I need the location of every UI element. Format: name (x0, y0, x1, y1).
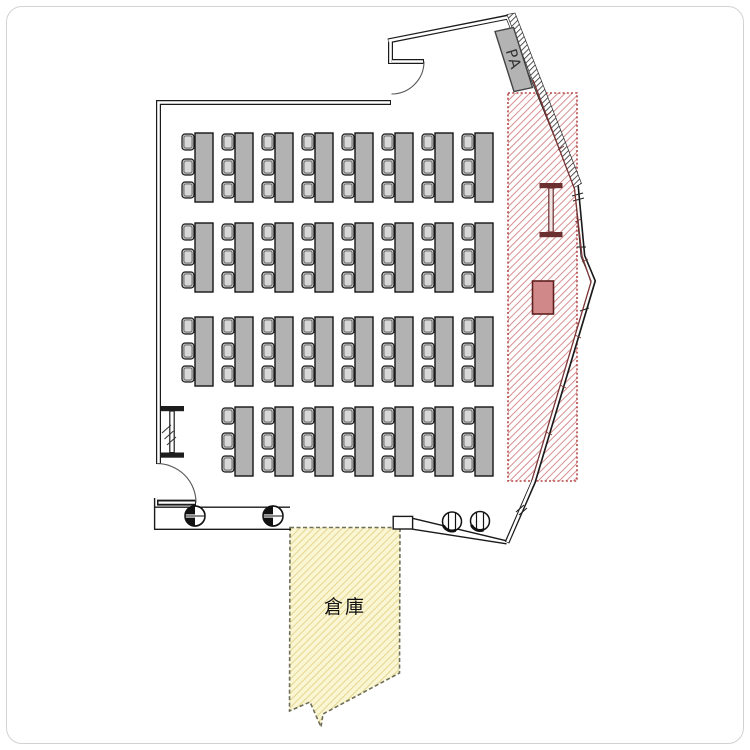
desk-top (195, 317, 213, 386)
desk-unit (342, 223, 373, 292)
chair-seat (424, 435, 432, 447)
desk-top (235, 223, 253, 292)
chair-seat (224, 136, 232, 148)
desk-unit (182, 133, 213, 202)
desk-unit (382, 223, 413, 292)
desk-top (395, 223, 413, 292)
chair-seat (344, 435, 352, 447)
desk-unit (342, 317, 373, 386)
desk-unit (222, 223, 253, 292)
desk-top (475, 407, 493, 476)
chair-seat (264, 136, 272, 148)
chair-seat (464, 184, 472, 196)
desk-unit (262, 317, 293, 386)
chair-seat (184, 320, 192, 332)
chair-seat (264, 368, 272, 380)
desk-top (395, 133, 413, 202)
chair-seat (184, 345, 192, 357)
desk-unit (462, 407, 493, 476)
chair-seat (224, 410, 232, 422)
chair-seat (424, 458, 432, 470)
chair-seat (464, 320, 472, 332)
desk-unit (462, 317, 493, 386)
storage-zone (290, 528, 401, 728)
desk-unit (222, 317, 253, 386)
column-symbol-southeast-2 (471, 512, 490, 531)
desk-unit (222, 133, 253, 202)
desk-top (355, 133, 373, 202)
chair-seat (344, 274, 352, 286)
desk-unit (302, 317, 333, 386)
chair-seat (224, 435, 232, 447)
chair-seat (344, 184, 352, 196)
top-door-swing-arc (392, 62, 425, 95)
chair-seat (464, 410, 472, 422)
desk-unit (302, 407, 333, 476)
chair-seat (224, 274, 232, 286)
chair-seat (264, 410, 272, 422)
desk-unit (422, 317, 453, 386)
chair-seat (264, 251, 272, 263)
desk-unit (342, 407, 373, 476)
chair-seat (384, 410, 392, 422)
desk-top (355, 317, 373, 386)
chair-seat (344, 410, 352, 422)
column-symbol-southeast-1 (443, 512, 462, 531)
desk-top (475, 317, 493, 386)
desk-unit (182, 317, 213, 386)
chair-seat (344, 320, 352, 332)
chair-seat (384, 184, 392, 196)
desk-top (355, 223, 373, 292)
chair-seat (464, 435, 472, 447)
desk-top (435, 133, 453, 202)
column-symbol-southwest-2 (262, 506, 284, 526)
chair-seat (464, 161, 472, 173)
chair-seat (224, 184, 232, 196)
chair-seat (384, 136, 392, 148)
chair-seat (304, 161, 312, 173)
chair-seat (224, 320, 232, 332)
chair-seat (424, 320, 432, 332)
chair-seat (304, 320, 312, 332)
column-symbol-southwest-1 (184, 506, 206, 526)
chair-seat (224, 458, 232, 470)
chair-seat (304, 410, 312, 422)
desk-grid (182, 133, 493, 476)
floor-plan-canvas: 倉庫 (0, 0, 750, 750)
chair-seat (304, 251, 312, 263)
chair-seat (304, 226, 312, 238)
desk-unit (302, 133, 333, 202)
chair-seat (184, 368, 192, 380)
chair-seat (224, 368, 232, 380)
chair-seat (344, 458, 352, 470)
chair-seat (224, 251, 232, 263)
desk-top (275, 407, 293, 476)
chair-seat (304, 136, 312, 148)
desk-top (475, 223, 493, 292)
desk-top (235, 407, 253, 476)
chair-seat (304, 345, 312, 357)
chair-seat (464, 251, 472, 263)
desk-unit (382, 407, 413, 476)
chair-seat (384, 251, 392, 263)
desk-unit (462, 133, 493, 202)
chair-seat (224, 345, 232, 357)
chair-seat (184, 274, 192, 286)
desk-top (315, 317, 333, 386)
desk-unit (262, 407, 293, 476)
chair-seat (264, 274, 272, 286)
chair-seat (264, 226, 272, 238)
chair-seat (384, 435, 392, 447)
desk-unit (422, 407, 453, 476)
desk-unit (262, 133, 293, 202)
stage-solid-block (533, 281, 554, 314)
desk-unit (382, 133, 413, 202)
chair-seat (384, 458, 392, 470)
desk-unit (262, 223, 293, 292)
chair-seat (384, 226, 392, 238)
desk-top (435, 317, 453, 386)
chair-seat (464, 274, 472, 286)
chair-seat (344, 251, 352, 263)
desk-unit (182, 223, 213, 292)
chair-seat (424, 184, 432, 196)
chair-seat (264, 458, 272, 470)
southeast-wall-outer-line (413, 529, 507, 544)
chair-seat (344, 136, 352, 148)
south-wall-stub (393, 516, 412, 529)
chair-seat (384, 274, 392, 286)
desk-top (235, 317, 253, 386)
desk-top (195, 223, 213, 292)
desk-unit (422, 133, 453, 202)
chair-seat (264, 345, 272, 357)
desk-top (475, 133, 493, 202)
chair-seat (184, 184, 192, 196)
chair-seat (384, 161, 392, 173)
chair-seat (264, 184, 272, 196)
chair-seat (184, 136, 192, 148)
chair-seat (424, 161, 432, 173)
chair-seat (344, 368, 352, 380)
desk-top (435, 407, 453, 476)
desk-top (395, 407, 413, 476)
chair-seat (344, 226, 352, 238)
desk-unit (382, 317, 413, 386)
desk-top (275, 317, 293, 386)
desk-top (315, 223, 333, 292)
desk-top (435, 223, 453, 292)
desk-unit (462, 223, 493, 292)
desk-top (275, 133, 293, 202)
chair-seat (424, 345, 432, 357)
chair-seat (384, 320, 392, 332)
chair-seat (304, 184, 312, 196)
chair-seat (384, 368, 392, 380)
chair-seat (464, 136, 472, 148)
chair-seat (264, 161, 272, 173)
chair-seat (424, 251, 432, 263)
desk-unit (342, 133, 373, 202)
desk-top (315, 407, 333, 476)
southwest-door-swing-arc (157, 464, 196, 503)
chair-seat (184, 251, 192, 263)
floor-plan: 倉庫 (0, 0, 750, 750)
chair-seat (424, 368, 432, 380)
chair-seat (224, 161, 232, 173)
chair-seat (424, 226, 432, 238)
chair-seat (464, 458, 472, 470)
chair-seat (304, 458, 312, 470)
chair-seat (344, 345, 352, 357)
chair-seat (304, 368, 312, 380)
chair-seat (184, 226, 192, 238)
chair-seat (184, 161, 192, 173)
desk-top (235, 133, 253, 202)
desk-top (355, 407, 373, 476)
chair-seat (464, 226, 472, 238)
storage-label: 倉庫 (324, 596, 366, 618)
chair-seat (304, 274, 312, 286)
chair-seat (344, 161, 352, 173)
desk-top (275, 223, 293, 292)
desk-unit (222, 407, 253, 476)
chair-seat (464, 368, 472, 380)
chair-seat (424, 410, 432, 422)
chair-seat (224, 226, 232, 238)
chair-seat (304, 435, 312, 447)
chair-seat (384, 345, 392, 357)
chair-seat (264, 320, 272, 332)
chair-seat (264, 435, 272, 447)
chair-seat (424, 274, 432, 286)
desk-unit (422, 223, 453, 292)
chair-seat (464, 345, 472, 357)
chair-seat (424, 136, 432, 148)
desk-top (315, 133, 333, 202)
desk-top (395, 317, 413, 386)
desk-top (195, 133, 213, 202)
desk-unit (302, 223, 333, 292)
ibeam-column-west (161, 406, 184, 458)
